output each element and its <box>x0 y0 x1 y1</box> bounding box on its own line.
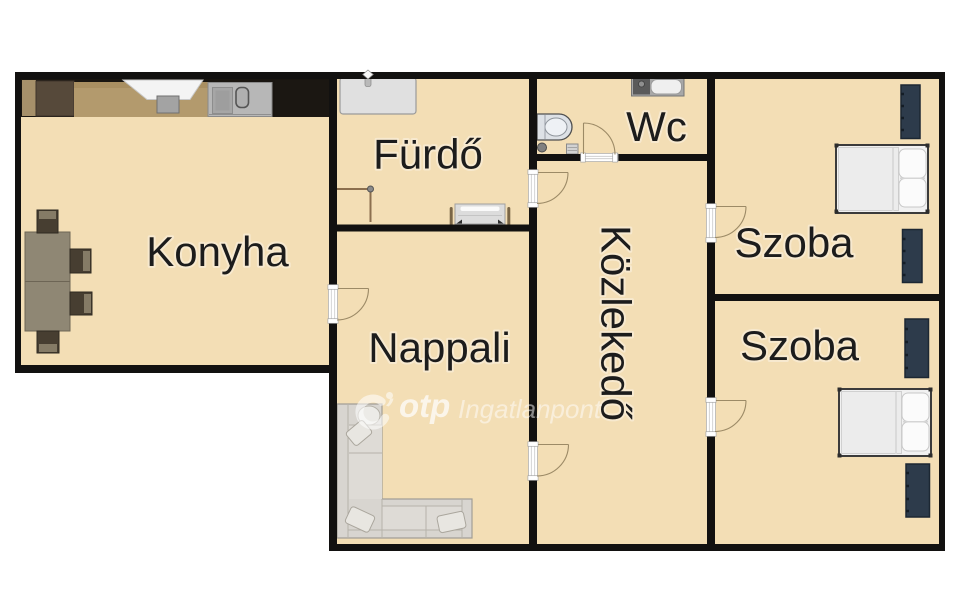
svg-text:Nappali: Nappali <box>368 324 510 371</box>
svg-text:otp: otp <box>399 387 450 424</box>
svg-text:Ingatlanpont: Ingatlanpont <box>458 394 603 424</box>
svg-text:Szoba: Szoba <box>740 322 860 369</box>
svg-text:Wc: Wc <box>626 103 687 150</box>
svg-text:Közlekedő: Közlekedő <box>593 225 640 421</box>
svg-text:Konyha: Konyha <box>146 228 289 275</box>
svg-text:Fürdő: Fürdő <box>373 131 483 178</box>
svg-text:Szoba: Szoba <box>734 219 854 266</box>
